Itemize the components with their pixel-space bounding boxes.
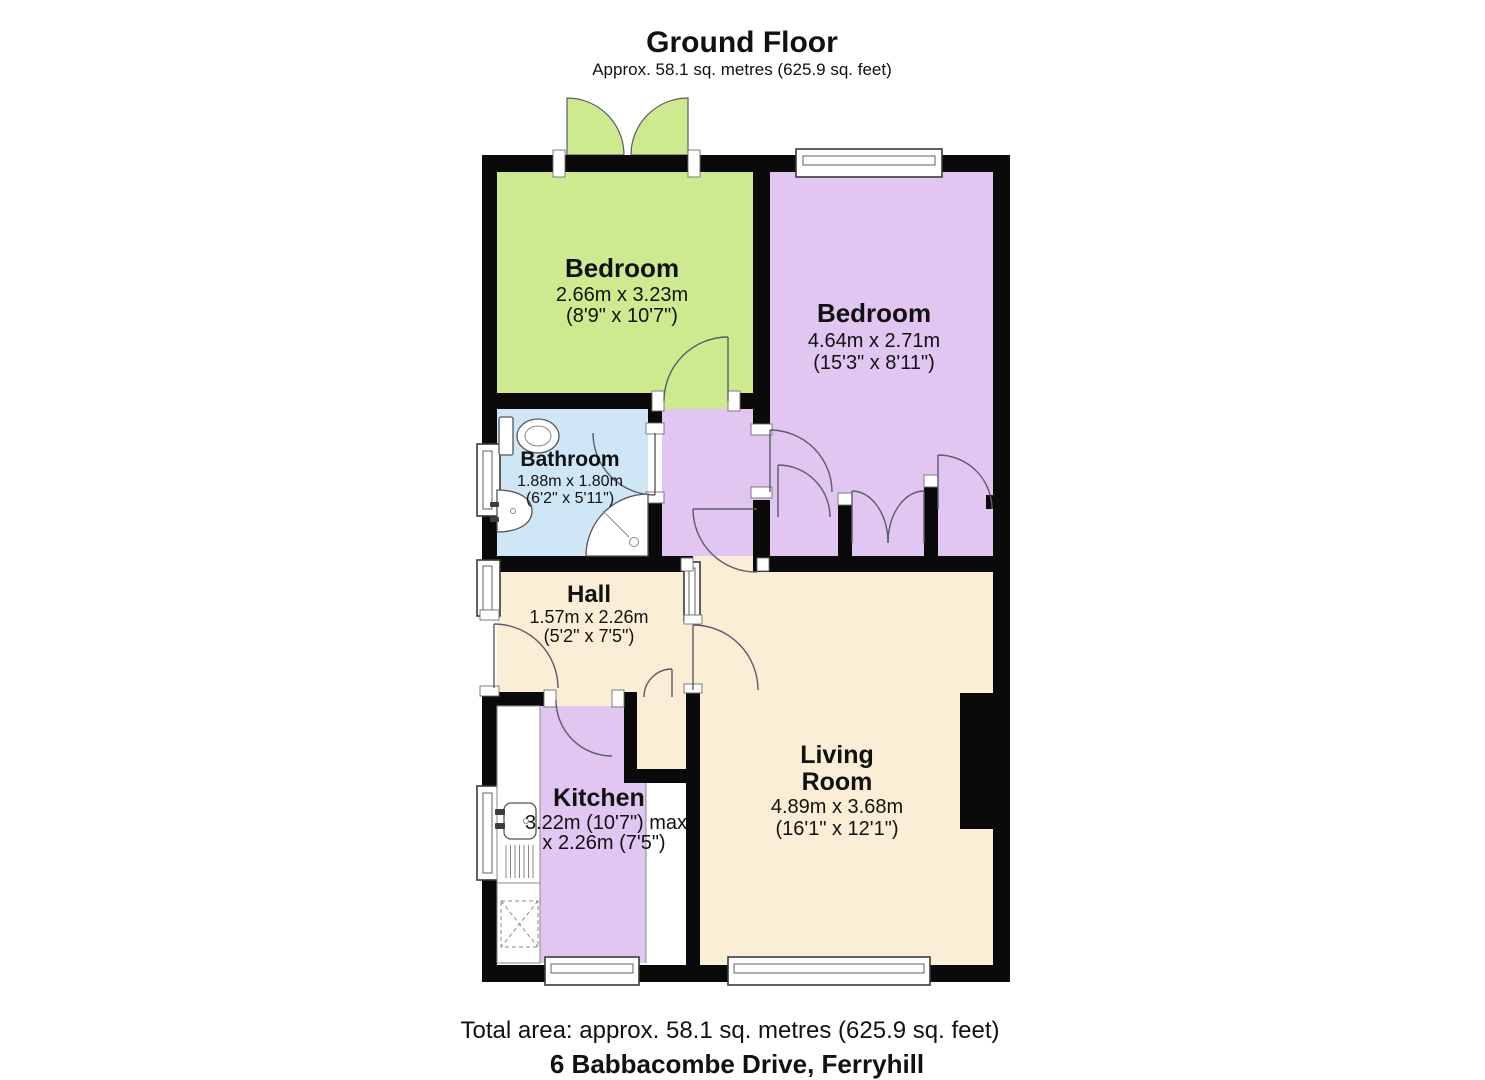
drainer-icon [506,845,533,878]
front-door-gap [482,618,497,690]
window-bedroom2-top [796,149,942,177]
living-room-label-line1: Living [800,741,874,769]
pantry-floor [646,783,686,963]
floorplan-drawing: Ground Floor Approx. 58.1 sq. metres (62… [0,0,1485,1080]
chimney-breast [960,693,993,829]
kitchen-dims-line2: x 2.26m (7'5") [542,832,665,854]
kitchen-fixtures [495,706,540,963]
window-kitchen-bottom [545,957,639,985]
total-area-label: Total area: approx. 58.1 sq. metres (625… [461,1017,1000,1044]
floorplan-page: Ground Floor Approx. 58.1 sq. metres (62… [0,0,1485,1080]
page-title: Ground Floor [646,26,838,59]
french-door-left-icon [567,98,624,155]
kitchen-dims-line1: 3.22m (10'7") max [525,812,687,834]
bedroom2-dims-imperial: (15'3" x 8'11") [813,352,935,374]
bedroom1-label: Bedroom [565,253,679,283]
bedroom1-dims-imperial: (8'9" x 10'7") [566,305,678,327]
bedroom2-label: Bedroom [817,298,931,328]
living-room-label-line2: Room [802,768,873,796]
bedroom1-dims-metric: 2.66m x 3.23m [556,284,688,306]
living-room-dims-imperial: (16'1" x 12'1") [775,818,898,840]
window-living-bottom [728,957,930,985]
bathroom-label: Bathroom [520,448,619,471]
french-door-right-icon [631,98,688,155]
bathroom-dims-metric: 1.88m x 1.80m [517,473,623,490]
address-label: 6 Babbacombe Drive, Ferryhill [550,1049,924,1079]
page-subtitle: Approx. 58.1 sq. metres (625.9 sq. feet) [592,60,892,79]
hall-cupboard-floor [637,692,686,769]
hall-label: Hall [567,581,611,608]
hall-dims-metric: 1.57m x 2.26m [529,607,648,627]
bathroom-dims-imperial: (6'2" x 5'11") [526,490,614,507]
kitchen-label: Kitchen [553,784,645,812]
living-room-dims-metric: 4.89m x 3.68m [771,796,903,818]
bedroom2-dims-metric: 4.64m x 2.71m [808,330,940,352]
window-hall-left [477,560,500,616]
hall-dims-imperial: (5'2" x 7'5") [544,626,635,646]
